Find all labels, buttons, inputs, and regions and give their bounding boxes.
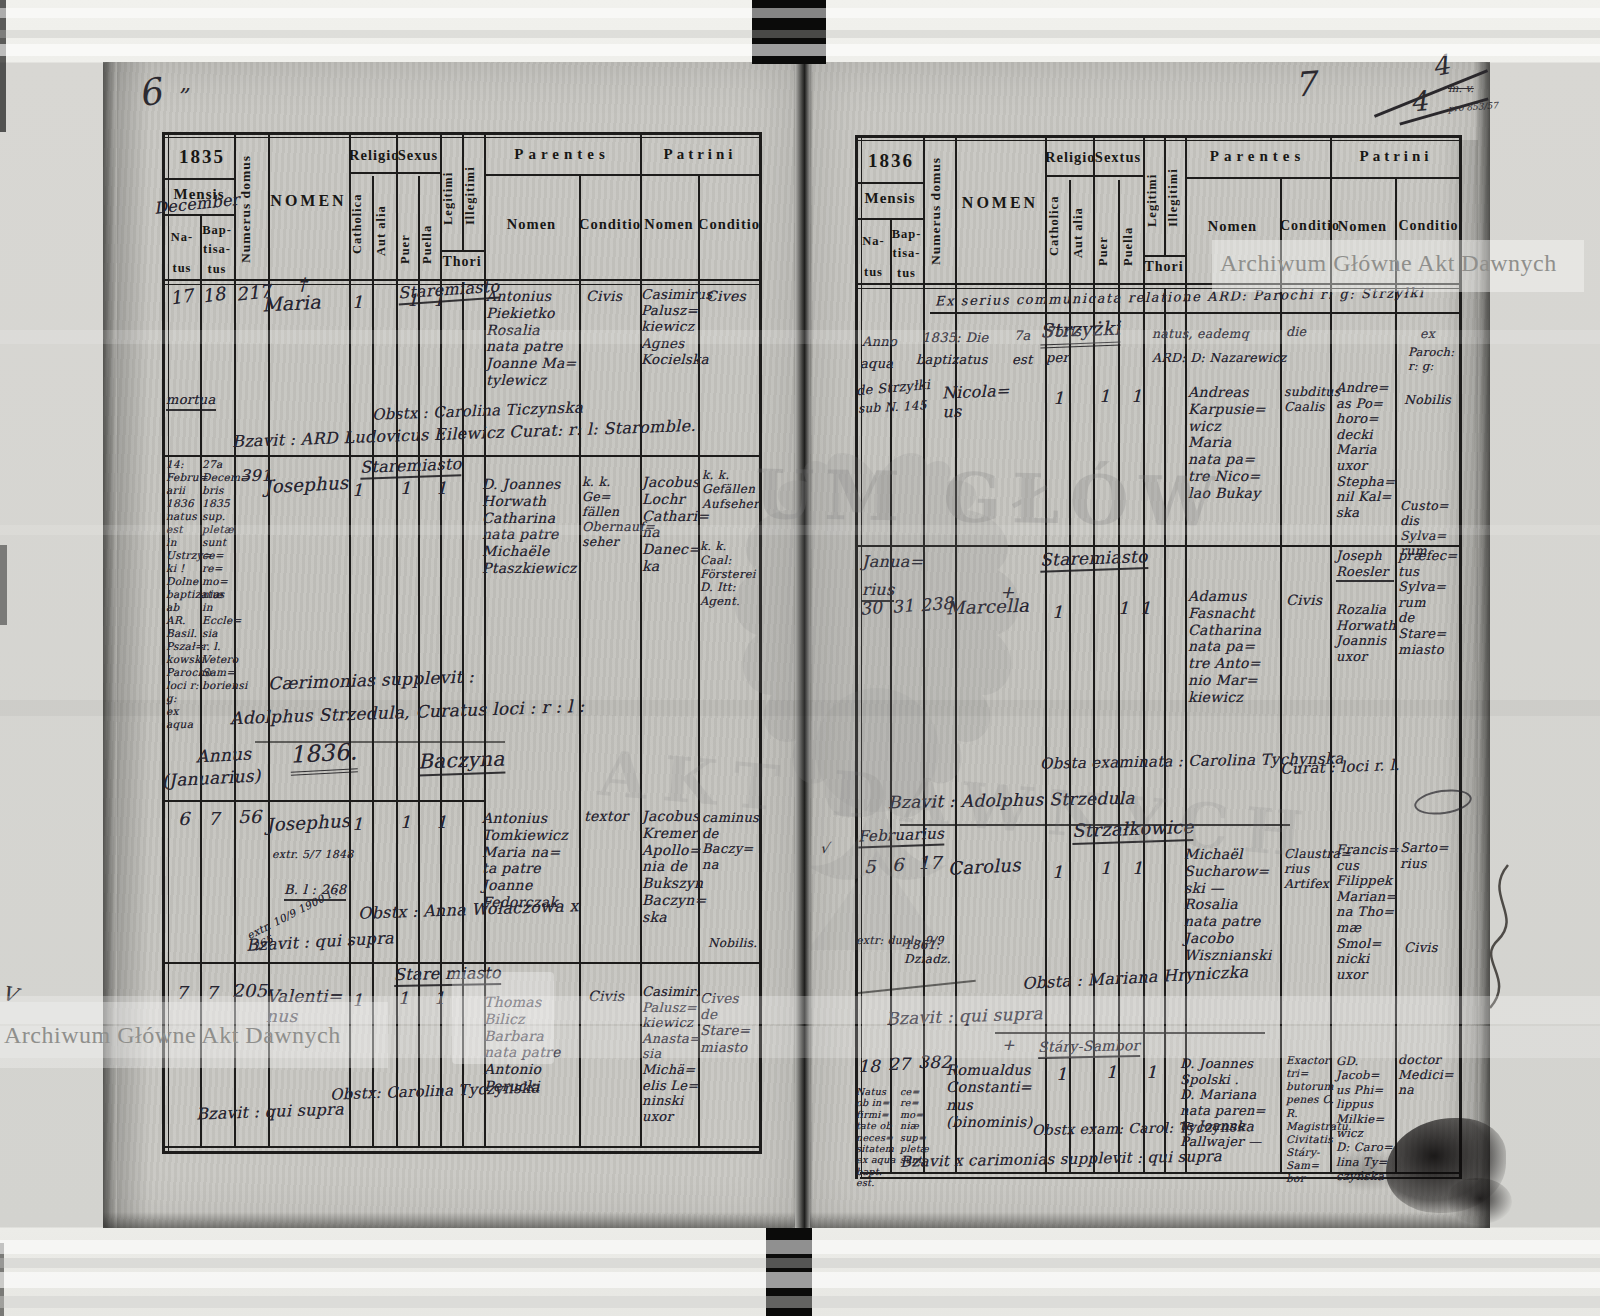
parentes-nomen-label: Nomen <box>484 216 579 232</box>
puella-tick: 1 <box>1118 598 1129 618</box>
patrini-conditio: Cives de Stare= miasto <box>700 990 758 1055</box>
patrini-conditio: caminus de Baczy= na <box>702 810 758 872</box>
legitimi-tick: 1 <box>434 988 445 1008</box>
parentes-conditio: Claustra= rius Artifex <box>1284 846 1342 891</box>
nomen-caps-label: NOMEN <box>955 194 1045 212</box>
table-border <box>855 135 858 1179</box>
entry-divider <box>164 800 484 802</box>
parentes-conditio: textor <box>584 808 628 825</box>
patrini-conditio-label: Conditio <box>1395 218 1462 234</box>
date-note-word: Paroch: r: g: <box>1408 346 1462 374</box>
catholica-tick: 1 <box>352 814 363 834</box>
catholica-tick: 1 <box>352 292 363 312</box>
entry-nomen: Marcella <box>946 595 1030 619</box>
patrini-conditio-2: k. k. Caal: Försterei D. Itt: Agent. <box>700 540 760 609</box>
date-note-word: natus, eademq <box>1152 326 1249 341</box>
legitimi-tick: 1 <box>1140 598 1151 618</box>
table-hline <box>857 182 923 184</box>
date-note-word: 1835: Die <box>922 330 989 346</box>
parentes-names: Antonius Piekietko Rosalia nata patre Jo… <box>486 288 582 389</box>
date-note-word: baptizatus <box>916 352 988 368</box>
table-hline <box>640 174 759 176</box>
legitimi-tick: 1 <box>1132 858 1143 878</box>
table-vline <box>372 176 374 1148</box>
date-note-word: 7a <box>1014 328 1031 344</box>
numerus-domus-label: Numerus domus <box>928 142 950 280</box>
margin-v-mark: V <box>0 981 19 1007</box>
table-border <box>164 1151 762 1154</box>
baptisatus-label: Bap- tisa- tus <box>199 221 235 279</box>
catholica-tick: 1 <box>352 480 363 500</box>
aut-alia-label: Aut alia <box>1071 188 1093 278</box>
catholica-tick: 1 <box>1056 1064 1067 1084</box>
table-vline <box>1164 289 1166 1174</box>
table-hline <box>1093 175 1143 177</box>
entry-baptisatus-day: 7 <box>208 808 220 830</box>
place-heading: Staremiasto <box>360 454 462 480</box>
table-hline <box>1185 177 1330 179</box>
natus-label: Na- tus <box>857 226 890 289</box>
parentes-names: Michaël Sucharow= ski — Rosalia nata pat… <box>1184 846 1284 964</box>
table-border <box>759 132 762 1154</box>
natus-margin-note: 14: Febru= arii 1836 natus est in Ustrzy… <box>166 458 200 731</box>
date-note-word: est <box>1012 352 1033 368</box>
entry-natus-day: 6 <box>178 808 190 830</box>
patrini-conditio: præfec= tus Sylva= rum de Stare= miasto <box>1398 548 1460 657</box>
date-note-word: per <box>1046 350 1069 366</box>
parentes-conditio-label: Conditio <box>1280 218 1330 234</box>
table-border <box>857 135 1462 138</box>
entry-nomen: Nicola= us <box>941 381 1022 422</box>
catholica-tick: 1 <box>1052 862 1063 882</box>
table-vline <box>418 176 420 1148</box>
nomen-caps-label: NOMEN <box>268 192 349 210</box>
patrini-names: GD. Jacob= us Phi= lippus Milkie= wicz D… <box>1336 1054 1398 1183</box>
patrini-names: Casimirus Palusz= kiewicz Agnes Kocielsk… <box>641 286 701 367</box>
page-number-left-mark: ” <box>176 84 187 109</box>
catholica-label: Catholica <box>1047 174 1069 278</box>
parentes-conditio: Civis <box>586 288 622 305</box>
scanned-register-spread: UM GŁÓW AKT DAWNYCH 1835 Mensis December… <box>0 0 1600 1316</box>
parentes-names: Andreas Karpusie= wicz Maria nata pa= tr… <box>1188 384 1286 502</box>
patrini-conditio: Cives <box>706 288 746 305</box>
date-note-word: ARD: D: Nazarewicz <box>1152 350 1322 365</box>
puer-tick: 1 <box>1106 1062 1117 1082</box>
table-border <box>857 140 1462 141</box>
table-hline <box>164 178 234 180</box>
patrini-conditio: Nobilis <box>1404 392 1451 407</box>
puer-tick: 1 <box>1099 386 1110 406</box>
parentes-nomen-label: Nomen <box>1185 218 1280 234</box>
entry-natus-day: 18 <box>858 1056 880 1076</box>
legitimi-label: Legitimi <box>441 150 463 246</box>
place-heading: Stáry-Sambor <box>1038 1037 1140 1059</box>
parentes-names: D. Joannes Horwath Catharina nata patre … <box>482 476 582 577</box>
legitimi-tick: 1 <box>1131 386 1142 406</box>
patrini-conditio-2: Nobilis. <box>708 936 757 950</box>
parentes-conditio: Civis <box>1286 592 1322 609</box>
table-hline <box>857 218 923 220</box>
death-cross-mark: + <box>1002 1036 1015 1054</box>
sextus-label: Sextus <box>1093 149 1143 165</box>
sexus-label: Sexus <box>396 147 440 163</box>
entry-nomen: Josephus <box>263 472 348 498</box>
extract-note-2: 1861: Dziadz. <box>904 938 964 967</box>
page-number-right: 7 <box>1293 63 1317 104</box>
thori-label: Thori <box>1143 259 1185 275</box>
catholica-tick: 1 <box>352 990 363 1010</box>
table-hline <box>396 172 440 174</box>
entry-divider <box>995 1032 1265 1034</box>
legitimi-tick: 1 <box>436 478 447 498</box>
patrini-conditio: doctor Medici= na <box>1398 1052 1458 1097</box>
natus-margin-note: Natus ob in= firmi= tate ob neces= sitat… <box>856 1086 896 1189</box>
puella-tick: 1 <box>407 290 418 310</box>
film-edge-mark <box>0 1243 4 1316</box>
month-note: Februarius <box>858 825 945 849</box>
entry-divider <box>164 455 762 457</box>
baptisatus-label: Bap- tisa- tus <box>890 225 923 283</box>
puer-label: Puer <box>1096 224 1118 278</box>
film-edge-mark <box>0 0 6 132</box>
parentes-label: Parentes <box>484 146 640 163</box>
patrini-names: Francis= cus Filippek Marian= na Tho= mæ… <box>1336 842 1396 982</box>
place-heading: Baczyna <box>418 746 505 776</box>
table-border <box>861 135 862 1179</box>
annus-heading: Annus <box>196 744 252 767</box>
legitimi-tick: 1 <box>433 290 444 310</box>
catholica-tick: 1 <box>1053 388 1064 408</box>
entry-house-number: 17 <box>918 852 942 874</box>
puer-label: Puer <box>398 222 420 276</box>
entry-baptisatus-day: 31 <box>891 595 915 617</box>
numerus-domus-label: Numerus domus <box>238 140 260 278</box>
date-note-word: aqua <box>860 356 893 372</box>
margin-check-mark: √ <box>820 840 829 856</box>
entry-nomen: Maria <box>261 290 321 316</box>
mortua-note: mortua <box>166 392 216 411</box>
puella-label: Puella <box>420 212 442 276</box>
catholica-tick: 1 <box>1052 602 1063 622</box>
corner-mv-note: m. v. <box>1448 82 1474 95</box>
legitimi-tick: 1 <box>436 812 447 832</box>
table-vline <box>1395 178 1397 1174</box>
film-edge-mark <box>0 545 7 625</box>
patrini-names-2: Rozalia Horwath Joannis uxor <box>1336 602 1396 664</box>
entry-nomen: Valenti= nus <box>266 986 366 1027</box>
natus-label: Na- tus <box>164 222 200 285</box>
patrini-conditio: Sarto= rius <box>1400 840 1456 871</box>
patrini-names: Jacobus Lochr Cathari= na Danec= ka <box>642 474 700 575</box>
puer-tick: 1 <box>398 988 409 1008</box>
extract-note: extr. 5/7 1848 <box>272 848 354 861</box>
patrini-nomen-label: Nomen <box>1330 218 1395 234</box>
table-hline <box>1143 255 1185 257</box>
patrini-names: Casimir: Palusz= kiewicz Anasta= sia Mic… <box>642 984 700 1124</box>
mensis-label: Mensis <box>859 190 921 207</box>
thori-label: Thori <box>440 254 484 270</box>
entry-house-number: 205 <box>232 980 267 1002</box>
entry-baptisatus-day: 27 <box>888 1054 910 1074</box>
parentes-conditio: k. k. Ge= fällen Obernauf= seher <box>582 474 640 549</box>
entry-natus-day: 7 <box>176 982 188 1004</box>
baptisatus-margin-note: 27a Decem= bris 1835 sup. pletæ sunt ce=… <box>202 458 234 692</box>
year-label: 1836 <box>862 150 920 171</box>
edge-pen-squiggle <box>1468 860 1528 1010</box>
month-note: Janua= <box>862 552 923 571</box>
patrini-conditio: k. k. Gefällen Aufseher <box>702 468 758 511</box>
patrini-names: Jacobus Kremer Apollo= nia de Bukszyn Ba… <box>642 808 702 926</box>
entry-baptisatus-day: 6 <box>892 854 904 876</box>
scanner-strip-bottom <box>766 1228 812 1316</box>
entry-baptisatus-day: 7 <box>206 982 218 1004</box>
patrini-names: Andre= as Po= horo= decki Maria uxor Ste… <box>1336 380 1394 520</box>
patrini-conditio-2: Civis <box>1404 940 1438 956</box>
parentes-label: Parentes <box>1185 148 1330 165</box>
parentes-conditio: Civis <box>588 988 624 1005</box>
parentes-names: Adamus Fasnacht Catharina nata pa= tre A… <box>1188 588 1286 706</box>
entry-natus-day: 17 <box>169 284 195 309</box>
year-label: 1835 <box>170 146 234 167</box>
date-note-word: Anno <box>862 334 897 350</box>
aut-alia-label: Aut alia <box>374 186 396 276</box>
date-note-word: die <box>1286 324 1306 339</box>
table-hline <box>1330 177 1460 179</box>
place-heading: Strzałkowice <box>1072 816 1194 845</box>
legitimi-label: Legitimi <box>1145 152 1167 248</box>
baptizavit-line: Bzavit : Adolphus Strzedula <box>888 788 1135 813</box>
patrini-conditio-label: Conditio <box>698 216 760 232</box>
date-note-word: ex <box>1420 326 1435 341</box>
table-border <box>162 132 165 1154</box>
date-note-word: 7bris <box>1046 324 1081 340</box>
table-hline <box>440 250 484 252</box>
note-underline <box>930 312 1462 314</box>
catholica-label: Catholica <box>350 172 372 276</box>
entry-nomen: Carolus <box>947 854 1021 879</box>
puella-label: Puella <box>1121 214 1143 278</box>
entry-baptisatus-day: 18 <box>201 282 227 307</box>
entry-natus-day: 5 <box>864 856 876 878</box>
table-hline <box>484 174 640 176</box>
puer-tick: 1 <box>400 478 411 498</box>
parentes-conditio-label: Conditio <box>579 216 640 232</box>
patrini-nomen-label: Nomen <box>640 216 698 232</box>
entry-divider <box>857 545 1462 547</box>
legitimi-tick: 1 <box>1146 1062 1157 1082</box>
table-hline <box>857 283 1462 285</box>
puer-tick: 1 <box>400 812 411 832</box>
entry-natus-day: 30 <box>859 597 883 619</box>
year-heading: 1836. <box>289 738 358 775</box>
illegitimi-label: Illegitimi <box>463 146 485 246</box>
religio-label: Religio <box>349 147 396 163</box>
patrini-label: Patrini <box>1330 148 1462 165</box>
corner-tiny-note: pro 853/57 <box>1448 100 1499 113</box>
parentes-conditio: subditus Caalis <box>1284 384 1336 414</box>
entry-nomen: Josephus <box>265 810 350 836</box>
entry-house-number: 56 <box>238 806 262 828</box>
scanner-strip-top <box>752 0 826 64</box>
religio-label: Religio <box>1045 149 1093 165</box>
place-heading: Staremiasto <box>1040 546 1148 573</box>
puer-tick: 1 <box>1100 858 1111 878</box>
patrini-names: Joseph Roesler <box>1336 548 1394 582</box>
place-heading: Stare miasto <box>394 963 501 987</box>
patrini-label: Patrini <box>640 146 760 163</box>
